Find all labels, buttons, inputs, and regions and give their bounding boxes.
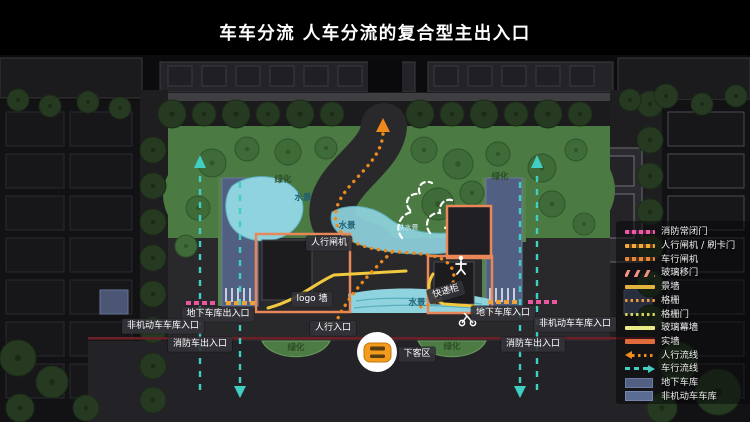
legend-item-ped-gate: 人行闸机 / 刷卡门 — [625, 240, 735, 252]
label-green-bottom-right: 绿化 — [443, 343, 460, 352]
grille-swatch-icon — [625, 299, 655, 302]
label-dropoff-zone: 下客区 — [398, 347, 435, 362]
legend-item-solid-wall: 实墙 — [625, 336, 735, 348]
nonmotor-garage-swatch-icon — [625, 391, 655, 401]
legend-item-fire-door: 消防常闭门 — [625, 226, 735, 238]
label-fire-exit-left: 消防车出入口 — [168, 337, 232, 352]
label-cascade: 跌水景 — [398, 225, 419, 232]
label-green-top-right: 绿化 — [491, 173, 508, 182]
glass-curtain-swatch-icon — [625, 326, 655, 330]
label-water-1: 水景 — [294, 194, 311, 203]
ped-gate-swatch-icon — [625, 244, 655, 248]
legend-item-ped-flow: 人行流线 — [625, 349, 735, 361]
legend-item-car-flow: 车行流线 — [625, 363, 735, 375]
legend-item-glass-slide-door: 玻璃移门 — [625, 267, 735, 279]
label-water-2: 水景 — [338, 222, 355, 231]
label-nonmotor-garage-left: 非机动车车库入口 — [122, 319, 204, 334]
glass-slide-swatch-icon — [625, 270, 655, 277]
feature-wall-swatch-icon — [625, 285, 655, 289]
legend-item-feature-wall: 景墙 — [625, 281, 735, 293]
legend-item-grille: 格栅 — [625, 294, 735, 306]
label-pedestrian-entrance: 人行入口 — [310, 321, 356, 336]
solid-wall-swatch-icon — [625, 339, 655, 345]
label-nonmotor-garage-right: 非机动车车库入口 — [534, 317, 616, 332]
legend-item-nonmotor-garage: 非机动车车库 — [625, 390, 735, 402]
label-green-top-left: 绿化 — [274, 176, 291, 185]
legend-item-glass-curtain: 玻璃幕墙 — [625, 322, 735, 334]
label-garage-entrance-right: 地下车库入口 — [471, 306, 535, 321]
ped-flow-swatch-icon — [625, 351, 655, 359]
car-gate-swatch-icon — [625, 257, 655, 261]
fire-door-swatch-icon — [625, 230, 655, 234]
grille-door-swatch-icon — [625, 313, 655, 316]
label-pedestrian-gate: 人行闸机 — [306, 236, 352, 251]
legend: 消防常闭门 人行闸机 / 刷卡门 车行闸机 玻璃移门 景墙 格栅 格栅门 玻璃幕… — [625, 226, 735, 402]
legend-item-underground-garage: 地下车库 — [625, 377, 735, 389]
label-water-3: 水景 — [408, 299, 425, 308]
car-icon — [357, 332, 397, 372]
label-fire-exit-right: 消防车出入口 — [501, 337, 565, 352]
legend-item-car-gate: 车行闸机 — [625, 253, 735, 265]
legend-item-grille-door: 格栅门 — [625, 308, 735, 320]
label-logo-wall: logo 墙 — [291, 292, 332, 307]
page-title: 车车分流 人车分流的复合型主出入口 — [0, 20, 750, 45]
slide: 车车分流 人车分流的复合型主出入口 人行闸机 logo 墙 人行入口 下客区 快… — [0, 0, 750, 422]
label-green-bottom-left: 绿化 — [287, 344, 304, 353]
underground-garage-swatch-icon — [625, 378, 655, 388]
car-flow-swatch-icon — [625, 365, 655, 373]
